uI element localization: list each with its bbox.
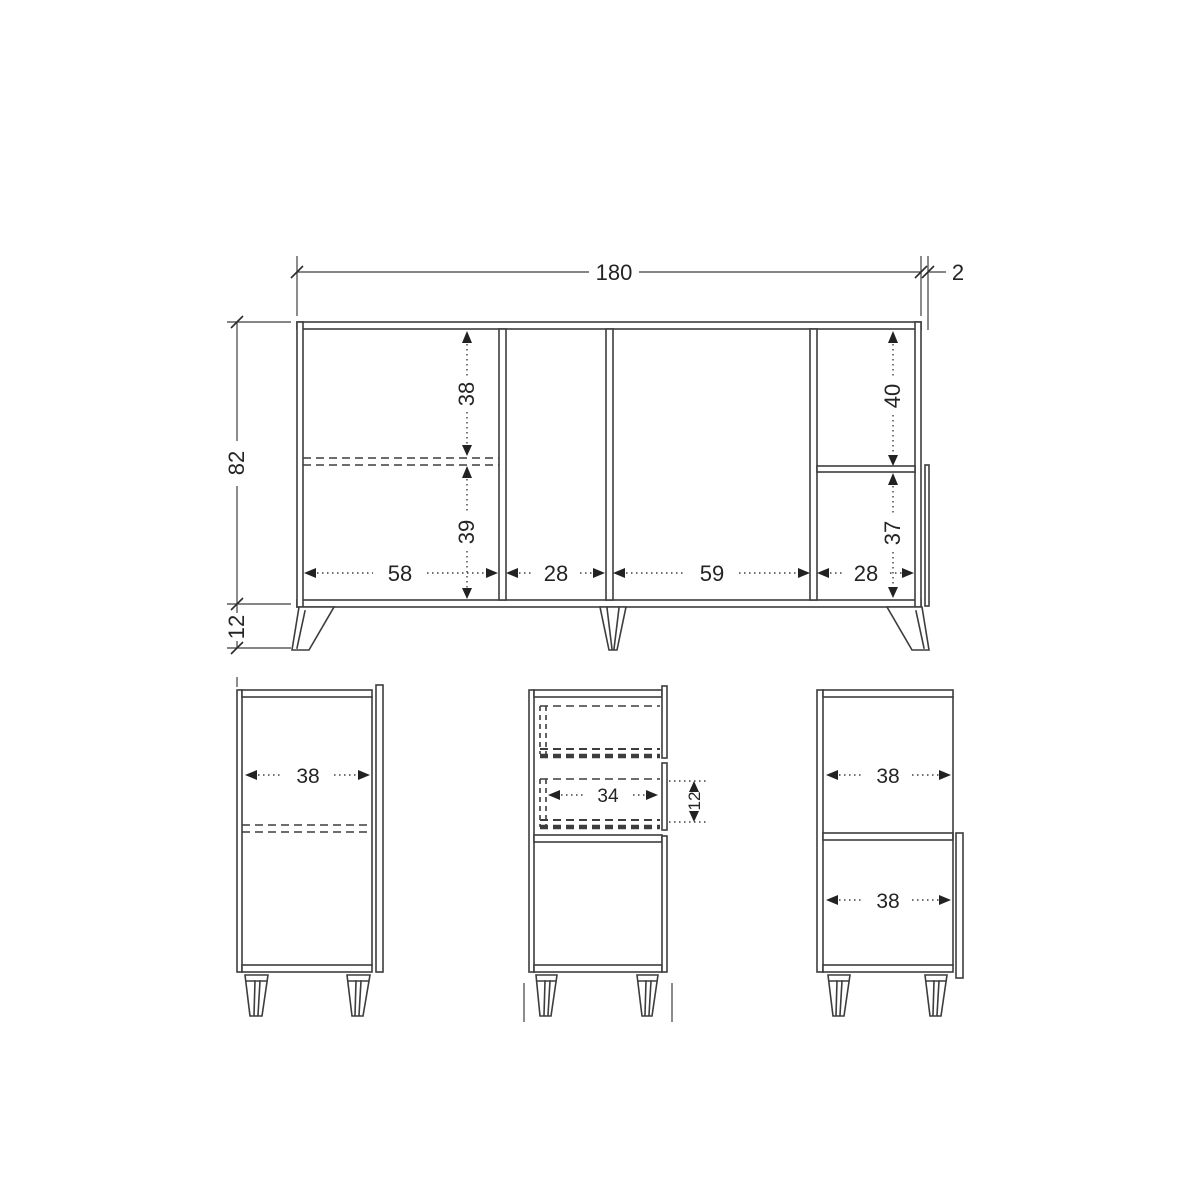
dim-left-bay-lower: 39 — [454, 466, 479, 599]
front-top-panel — [297, 322, 921, 329]
dim-leg-height: 12 — [224, 604, 291, 654]
sv-mid-divider — [534, 835, 662, 842]
front-divider-1 — [499, 329, 506, 600]
dim-right-bay-upper: 40 — [880, 331, 905, 466]
front-right-wall — [915, 322, 921, 607]
sv-mid-upper-drawer — [540, 706, 660, 756]
front-divider-2 — [606, 329, 613, 600]
technical-drawing-page: 180 2 82 12 — [0, 0, 1200, 1200]
dim-left-bay-upper: 38 — [454, 331, 479, 456]
label-sv-mid-drawer-width: 34 — [597, 786, 619, 807]
label-leg-height: 12 — [224, 615, 249, 639]
sv-mid-bottom-panel — [534, 965, 662, 972]
sv-right-back-wall — [817, 690, 823, 972]
label-overall-width: 180 — [596, 260, 633, 285]
label-sv-left-depth: 38 — [296, 765, 319, 788]
side-view-left: 38 — [237, 677, 383, 1016]
label-left-bay-lower: 39 — [454, 520, 479, 544]
label-right-bay-upper: 40 — [880, 384, 905, 408]
sv-mid-dim-drawer-height: 12 — [669, 781, 707, 822]
sv-left-front-edge — [376, 685, 383, 972]
sv-right-divider — [823, 833, 953, 840]
dim-overall-width: 180 — [291, 256, 927, 316]
label-right-bay-lower: 37 — [880, 521, 905, 545]
label-top-thickness: 2 — [952, 260, 964, 285]
sv-mid-dim-drawer-width: 34 — [548, 786, 658, 807]
dim-carcass-height: 82 — [224, 316, 291, 610]
front-legs — [292, 607, 929, 650]
label-sv-mid-drawer-height: 12 — [685, 792, 704, 811]
label-bay-width-1: 58 — [388, 561, 412, 586]
sv-left-legs — [245, 975, 370, 1016]
sv-right-dim-upper: 38 — [826, 765, 951, 788]
label-carcass-height: 82 — [224, 451, 249, 475]
sv-mid-front-edge-b — [662, 763, 667, 830]
dim-top-thickness: 2 — [922, 256, 964, 330]
label-bay-width-3: 59 — [700, 561, 724, 586]
front-left-wall — [297, 322, 303, 607]
sv-left-bottom-panel — [242, 965, 372, 972]
front-view: 180 2 82 12 — [224, 256, 964, 654]
side-view-right: 38 38 — [817, 690, 963, 1016]
front-bottom-panel — [297, 600, 921, 607]
sv-mid-front-edge-a — [662, 686, 667, 758]
label-bay-width-2: 28 — [544, 561, 568, 586]
sv-mid-front-edge-c — [662, 836, 667, 972]
sv-left-dim-depth: 38 — [245, 765, 370, 788]
furniture-dimension-diagram: 180 2 82 12 — [0, 0, 1200, 1200]
sv-right-legs — [828, 975, 947, 1016]
sv-left-back-wall — [237, 690, 242, 972]
sv-right-dim-lower: 38 — [826, 890, 951, 913]
sv-left-top-panel — [242, 690, 372, 697]
label-sv-right-lower-depth: 38 — [876, 890, 899, 913]
sv-right-bottom-panel — [823, 965, 953, 972]
front-right-shelf — [817, 466, 915, 472]
sv-mid-legs — [536, 975, 658, 1016]
sv-right-door-edge — [956, 833, 963, 978]
sv-mid-top-panel — [534, 690, 662, 697]
label-sv-right-upper-depth: 38 — [876, 765, 899, 788]
sv-mid-back-wall — [529, 690, 534, 972]
label-left-bay-upper: 38 — [454, 382, 479, 406]
side-view-middle: 34 12 — [524, 686, 707, 1022]
dim-right-bay-lower: 37 — [880, 473, 905, 598]
label-bay-width-4: 28 — [854, 561, 878, 586]
front-open-door-edge — [925, 465, 929, 606]
front-divider-3 — [810, 329, 817, 600]
sv-right-top-panel — [823, 690, 953, 697]
